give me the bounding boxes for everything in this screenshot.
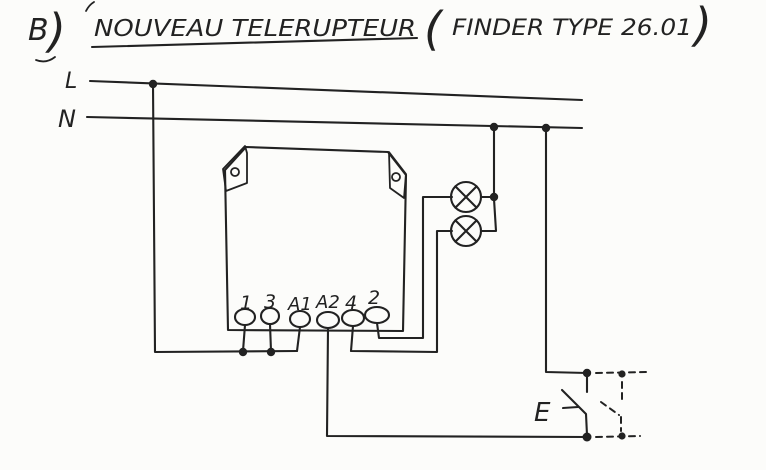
dashed-extra-button — [596, 370, 648, 439]
telerupteur-wiring-diagram: B ) NOUVEAU TELERUPTEUR ( FINDER TYPE 26… — [0, 0, 766, 470]
pushbutton-actuator — [563, 407, 578, 408]
label-line-n: N — [58, 105, 76, 133]
wire-line-l — [90, 81, 582, 100]
scanned-schematic-page: B ) NOUVEAU TELERUPTEUR ( FINDER TYPE 26… — [0, 0, 766, 470]
junction-dot — [239, 348, 247, 356]
terminal-label: 2 — [368, 287, 380, 309]
pushbutton-blade — [562, 390, 587, 435]
terminal-circle — [365, 307, 389, 323]
wire-line-n — [87, 117, 582, 128]
pushbutton-label: E — [534, 398, 551, 428]
title-subtitle: FINDER TYPE 26.01 — [452, 16, 692, 41]
lamp-cross — [455, 220, 476, 241]
wire-lamp2-to-n — [481, 199, 496, 231]
terminal-label: A2 — [315, 292, 340, 313]
title-main: NOUVEAU TELERUPTEUR — [94, 16, 416, 42]
lamp-1 — [451, 182, 498, 212]
dashed-blade — [601, 402, 619, 415]
wire-terminal-1 — [243, 325, 245, 351]
title-index: B — [28, 13, 49, 48]
subtitle-paren-close: ) — [691, 0, 712, 52]
screw-icon — [392, 173, 400, 181]
wire-terminal-4-to-lamp2 — [351, 231, 452, 352]
junction-dot — [583, 433, 592, 442]
pen-stroke — [86, 2, 94, 11]
junction-dot — [618, 370, 625, 377]
dashed-wire-bottom — [596, 436, 640, 437]
subtitle-paren-open: ( — [424, 2, 444, 56]
title-index-paren: ) — [45, 4, 66, 58]
title-block: B ) NOUVEAU TELERUPTEUR ( FINDER TYPE 26… — [28, 0, 712, 61]
wiring — [153, 84, 588, 437]
terminal-circle — [317, 312, 339, 328]
lamp-cross — [455, 186, 476, 207]
wire-n-to-button — [546, 128, 587, 373]
pushbutton-e: E — [534, 369, 648, 442]
screw-icon — [231, 168, 239, 176]
wire-terminal-3 — [270, 324, 271, 351]
junction-dot — [267, 348, 275, 356]
telerupteur-box: 1 3 A1 A2 4 2 — [223, 146, 406, 331]
label-line-l: L — [65, 69, 77, 94]
supply-lines: L N — [58, 69, 582, 133]
